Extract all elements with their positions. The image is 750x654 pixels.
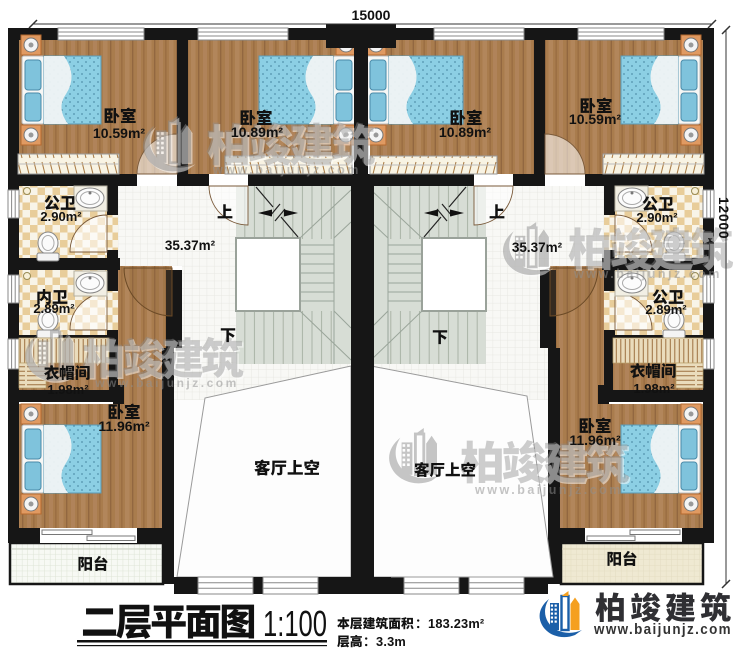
svg-text:2.89m²: 2.89m² (645, 302, 687, 317)
svg-text:10.59m²: 10.59m² (569, 111, 621, 127)
svg-text:：3.3m: ：3.3m (363, 634, 406, 649)
svg-text:www.baijunjz.com: www.baijunjz.com (593, 622, 732, 638)
svg-text:35.37m²: 35.37m² (512, 240, 563, 255)
svg-text:1.98m²: 1.98m² (633, 381, 675, 396)
svg-text:11.96m²: 11.96m² (569, 432, 621, 448)
svg-text:：183.23m²: ：183.23m² (415, 616, 484, 631)
svg-text:35.37m²: 35.37m² (165, 238, 216, 253)
svg-text:10.89m²: 10.89m² (439, 124, 491, 140)
svg-text:www.baijunjz.com: www.baijunjz.com (573, 267, 722, 281)
svg-text:1:100: 1:100 (263, 603, 327, 644)
svg-text:www.baijunjz.com: www.baijunjz.com (212, 163, 361, 177)
svg-text:12000: 12000 (716, 197, 731, 240)
svg-text:www.baijunjz.com: www.baijunjz.com (94, 376, 239, 390)
svg-text:15000: 15000 (352, 7, 391, 23)
svg-text:10.59m²: 10.59m² (93, 125, 145, 141)
svg-text:2.90m²: 2.90m² (636, 210, 678, 225)
svg-text:1.98m²: 1.98m² (47, 382, 89, 397)
svg-text:2.90m²: 2.90m² (40, 209, 82, 224)
svg-text:2.89m²: 2.89m² (33, 301, 75, 316)
svg-text:www.baijunjz.com: www.baijunjz.com (474, 483, 623, 497)
svg-text:11.96m²: 11.96m² (98, 418, 150, 434)
svg-text:10.89m²: 10.89m² (231, 124, 283, 140)
